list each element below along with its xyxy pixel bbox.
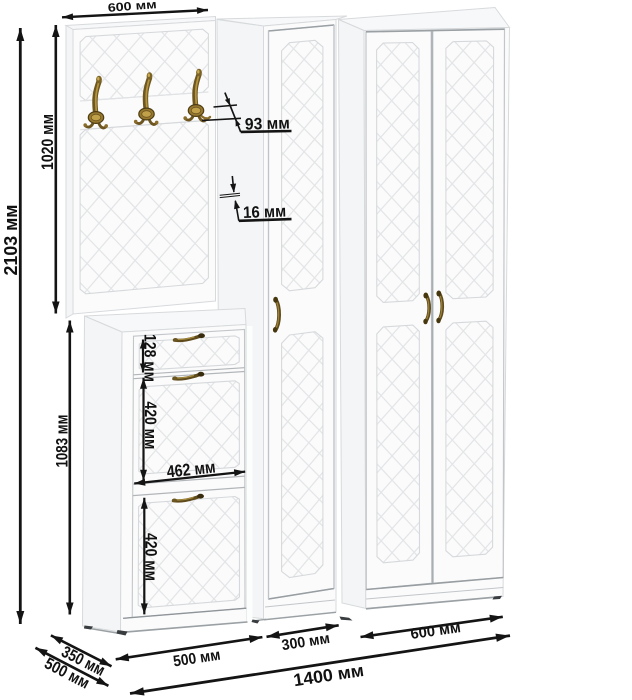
svg-text:420 мм: 420 мм bbox=[142, 533, 161, 581]
svg-text:128 мм: 128 мм bbox=[141, 334, 160, 382]
svg-text:420 мм: 420 мм bbox=[141, 401, 160, 449]
svg-text:1083 мм: 1083 мм bbox=[53, 415, 72, 468]
svg-text:16 мм: 16 мм bbox=[243, 203, 287, 222]
svg-text:93 мм: 93 мм bbox=[245, 114, 290, 133]
svg-text:2103 мм: 2103 мм bbox=[1, 205, 21, 276]
svg-text:1020 мм: 1020 мм bbox=[38, 114, 57, 170]
